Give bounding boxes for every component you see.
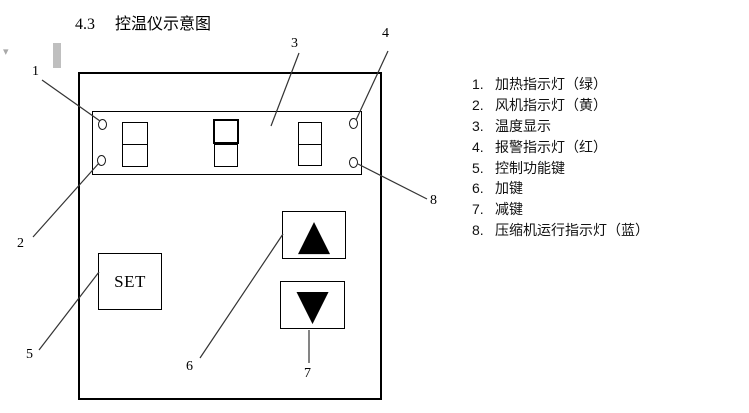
section-heading: 4.3控温仪示意图	[75, 10, 211, 34]
callout-label-8: 8	[430, 193, 437, 209]
digit-box-2-top	[213, 119, 239, 144]
legend-item-4: 4. 报警指示灯（红）	[472, 136, 732, 157]
section-title: 控温仪示意图	[115, 16, 211, 33]
outline-collapse-icon: ▾	[3, 45, 9, 58]
compressor-indicator-light	[349, 157, 358, 168]
legend-item-3-label: 温度显示	[495, 116, 551, 136]
digit-box-3-divider	[299, 144, 321, 145]
increase-button: ▲	[282, 211, 346, 259]
up-arrow-icon: ▲	[298, 214, 330, 256]
legend-item-6-label: 加键	[495, 178, 523, 198]
legend-item-3: 3. 温度显示	[472, 116, 732, 137]
legend-item-1: 1. 加热指示灯（绿）	[472, 74, 732, 95]
legend-item-5: 5. 控制功能键	[472, 157, 732, 178]
legend-item-4-label: 报警指示灯（红）	[495, 137, 607, 157]
legend-item-7: 7. 减键	[472, 199, 732, 220]
legend-item-2-number: 2.	[472, 97, 495, 113]
callout-label-6: 6	[186, 359, 193, 375]
legend-list: 1. 加热指示灯（绿） 2. 风机指示灯（黄） 3. 温度显示 4. 报警指示灯…	[472, 74, 732, 240]
section-number: 4.3	[75, 16, 95, 33]
callout-label-2: 2	[17, 236, 24, 252]
decrease-button: ▼	[280, 281, 345, 329]
legend-item-1-label: 加热指示灯（绿）	[495, 74, 607, 94]
legend-item-4-number: 4.	[472, 139, 495, 155]
digit-box-1	[122, 122, 148, 167]
heating-indicator-light	[98, 119, 107, 130]
legend-item-7-number: 7.	[472, 201, 495, 217]
legend-item-7-label: 减键	[495, 199, 523, 219]
down-arrow-icon: ▼	[296, 284, 328, 326]
legend-item-3-number: 3.	[472, 118, 495, 134]
callout-label-4: 4	[382, 26, 389, 42]
legend-item-2-label: 风机指示灯（黄）	[495, 95, 607, 115]
legend-item-6-number: 6.	[472, 180, 495, 196]
legend-item-6: 6. 加键	[472, 178, 732, 199]
legend-item-8-label: 压缩机运行指示灯（蓝）	[495, 220, 649, 240]
callout-label-7: 7	[304, 366, 311, 382]
legend-item-8-number: 8.	[472, 222, 495, 238]
digit-box-1-divider	[123, 144, 147, 145]
callout-label-3: 3	[291, 36, 298, 52]
digit-box-3	[298, 122, 322, 166]
set-button-label: SET	[114, 272, 146, 292]
callout-label-5: 5	[26, 347, 33, 363]
alarm-indicator-light	[349, 118, 358, 129]
fan-indicator-light	[97, 155, 106, 166]
legend-item-1-number: 1.	[472, 76, 495, 92]
legend-item-2: 2. 风机指示灯（黄）	[472, 95, 732, 116]
legend-item-5-label: 控制功能键	[495, 158, 565, 178]
document-page: 4.3控温仪示意图 ▾ SET ▲ ▼ 1 2 3 4	[0, 0, 749, 413]
legend-item-5-number: 5.	[472, 160, 495, 176]
digit-box-2-bottom	[214, 144, 238, 167]
legend-item-8: 8. 压缩机运行指示灯（蓝）	[472, 220, 732, 241]
set-button: SET	[98, 253, 162, 310]
margin-bar-artifact	[53, 43, 61, 68]
callout-label-1: 1	[32, 64, 39, 80]
